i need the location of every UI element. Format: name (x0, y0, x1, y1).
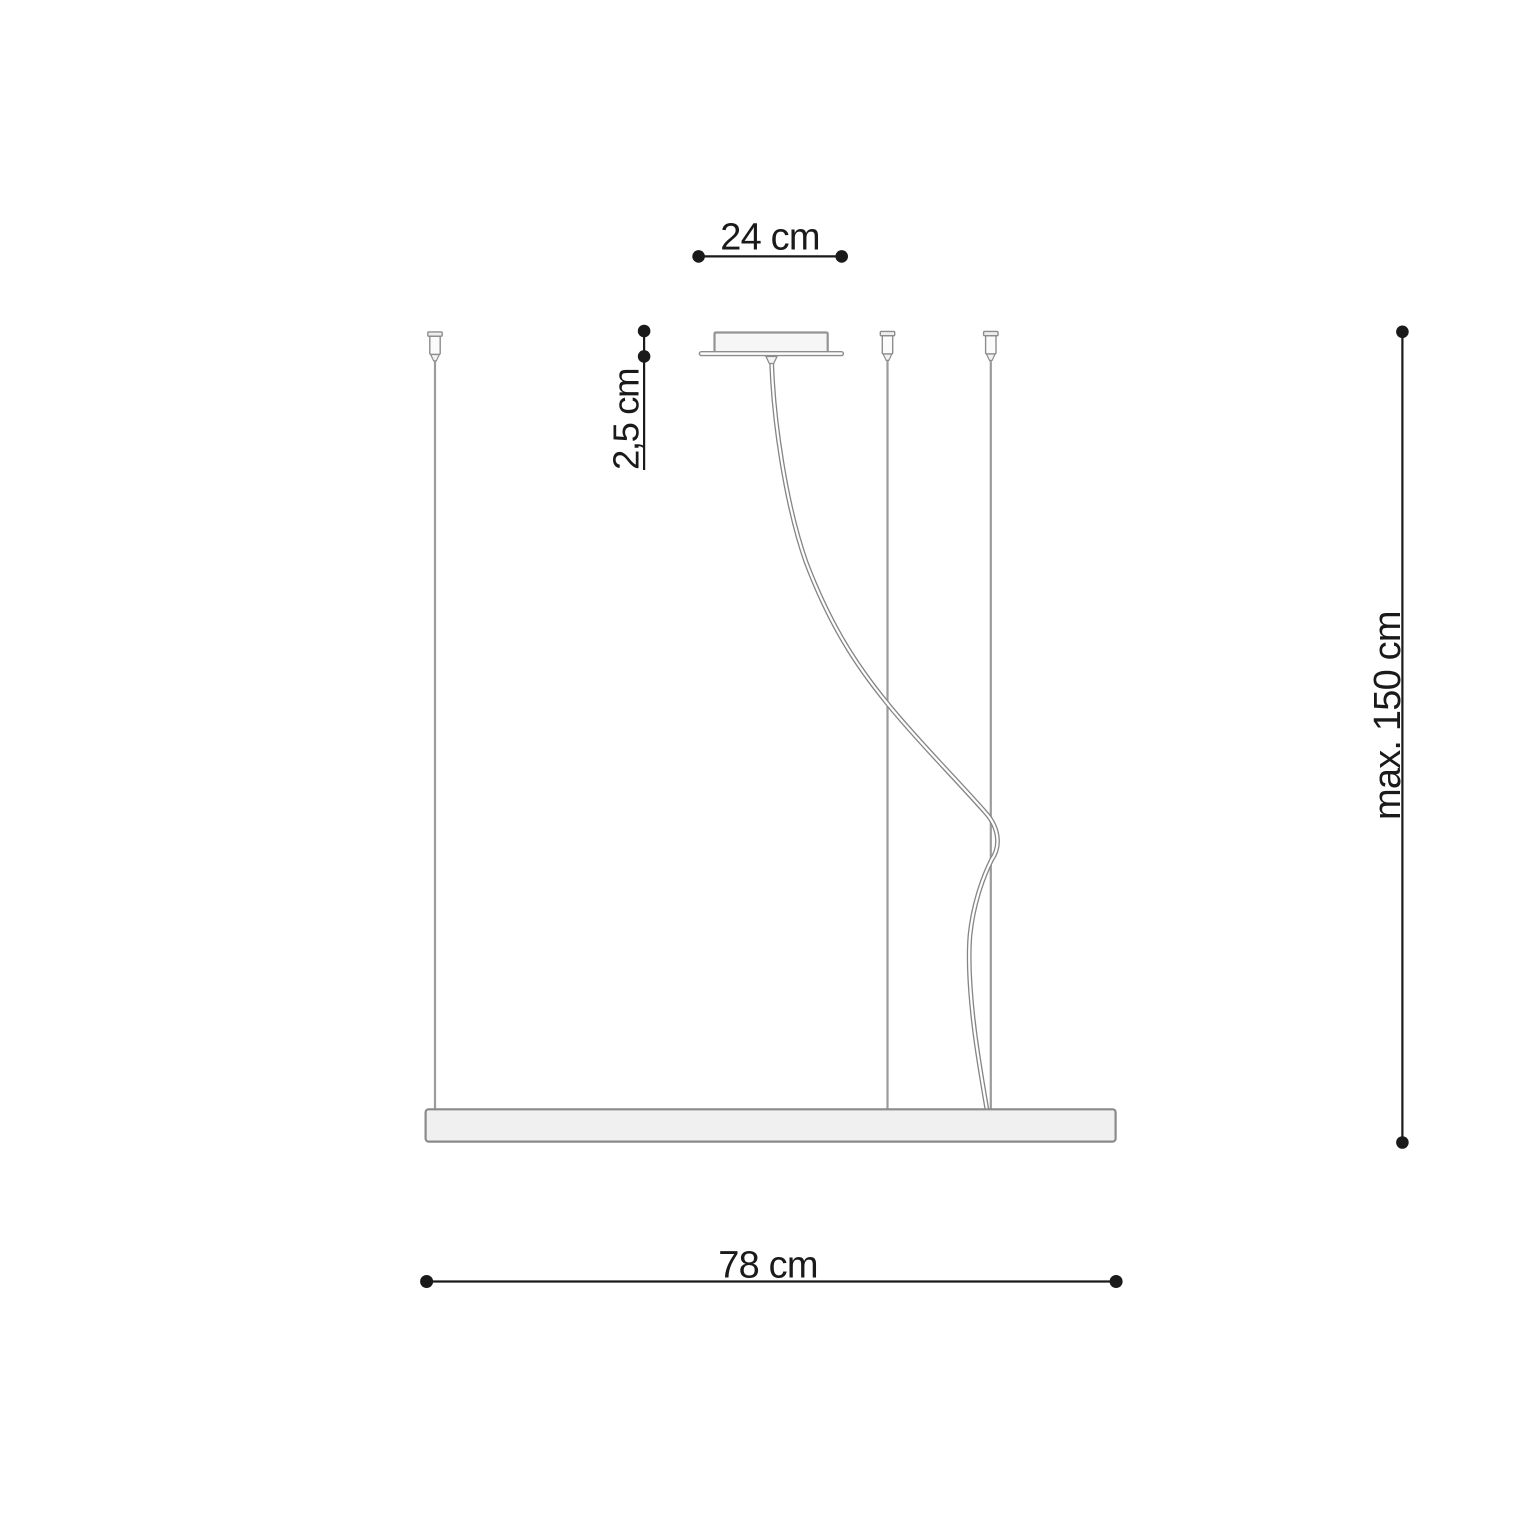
svg-text:24 cm: 24 cm (720, 217, 819, 259)
svg-text:max. 150 cm: max. 150 cm (1367, 611, 1409, 820)
svg-text:78 cm: 78 cm (718, 1244, 817, 1286)
svg-text:2,5 cm: 2,5 cm (606, 369, 647, 470)
